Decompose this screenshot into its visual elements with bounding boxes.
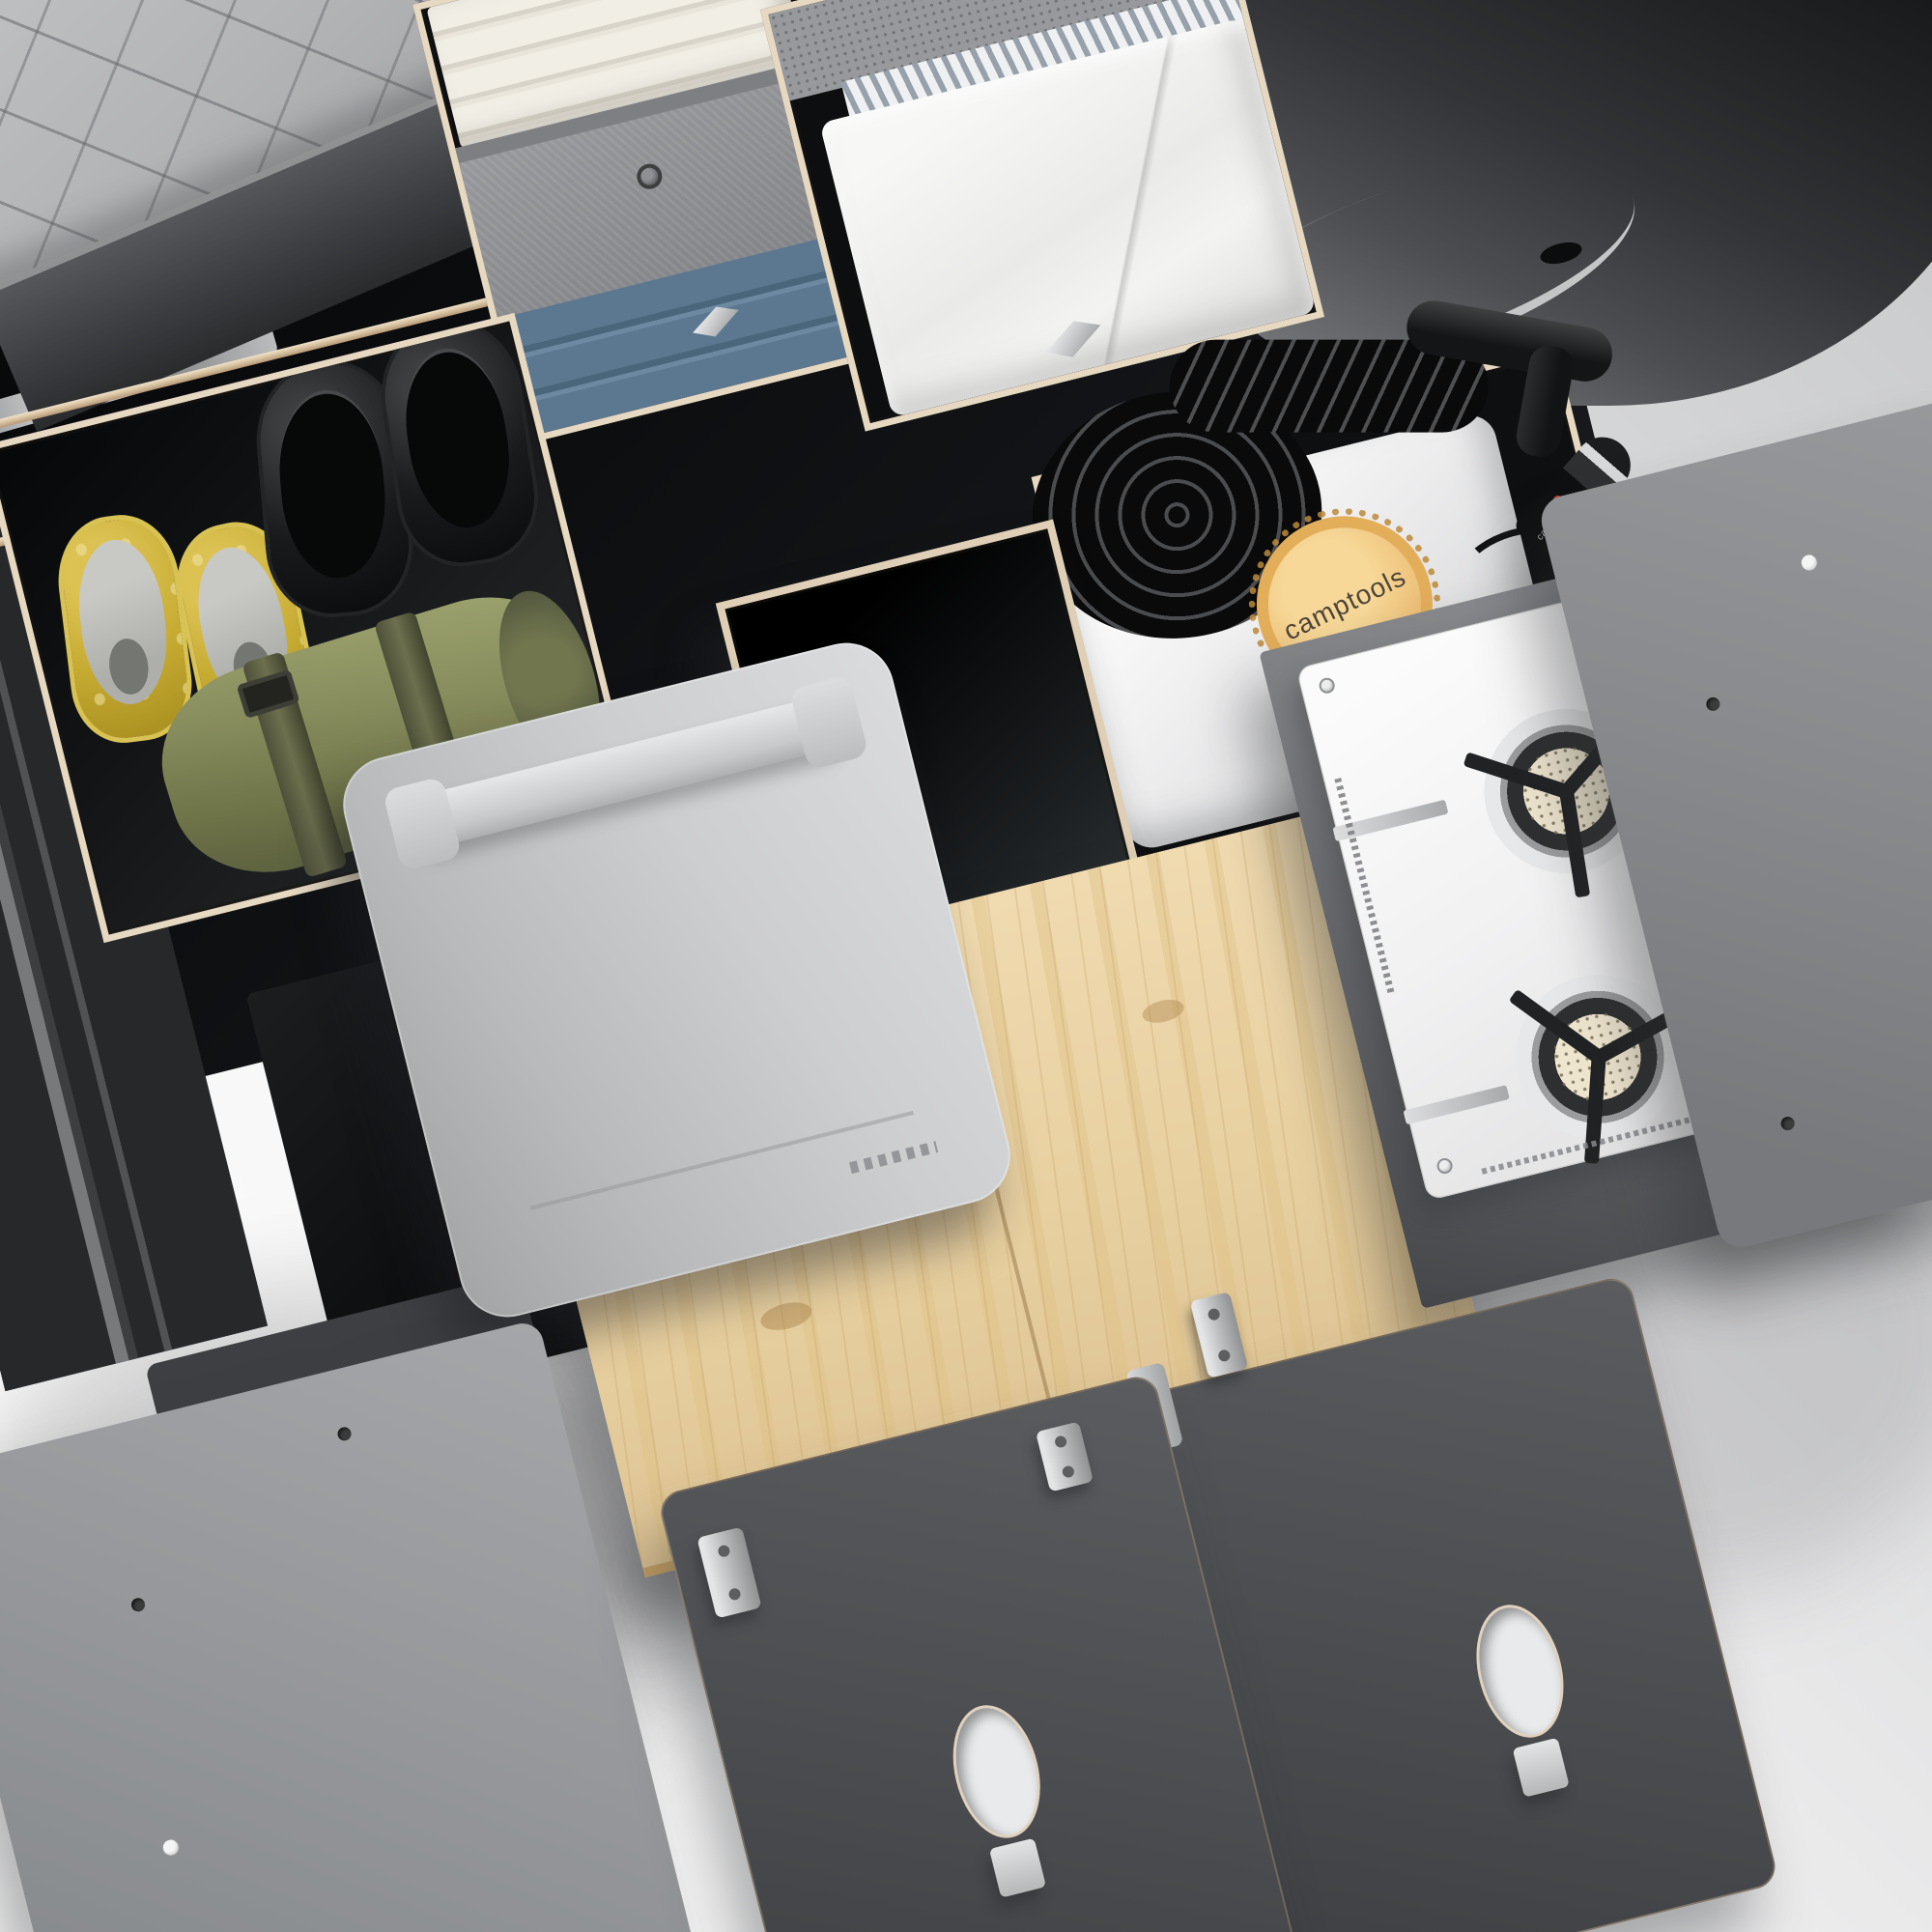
hinge-screw <box>1207 1307 1221 1321</box>
yellow-rubber-boot <box>51 508 199 748</box>
cooler-vent <box>849 1141 938 1174</box>
hinge-screw <box>1054 1435 1068 1449</box>
boot-opening <box>394 341 520 535</box>
panel-handle-cutout <box>940 1696 1053 1848</box>
boot-opening <box>272 385 391 582</box>
panel-clip <box>989 1838 1046 1898</box>
pan-support-wing <box>1403 1085 1509 1124</box>
trouser-button <box>635 161 666 192</box>
screw <box>1318 676 1336 695</box>
panel-handle-cutout <box>1463 1596 1577 1747</box>
hinge-screw <box>727 1587 742 1602</box>
screw <box>1779 1116 1796 1132</box>
spec-micro-text <box>1334 778 1394 995</box>
hinge-screw <box>717 1544 731 1558</box>
boot-opening <box>71 535 175 709</box>
screw <box>1705 696 1721 712</box>
wood-grain <box>1140 996 1186 1027</box>
campervan-storage-box-photo: camptools camptools <box>0 0 1932 1932</box>
boot-heel <box>106 637 152 697</box>
hinge-screw <box>1217 1349 1232 1363</box>
screw <box>336 1426 353 1442</box>
hinge-screw <box>1062 1464 1076 1479</box>
screw <box>1435 1156 1454 1175</box>
wood-grain <box>758 1297 815 1334</box>
screw <box>130 1597 147 1613</box>
panel-clip <box>1513 1738 1570 1798</box>
screw <box>1799 553 1820 574</box>
screw <box>160 1837 182 1859</box>
